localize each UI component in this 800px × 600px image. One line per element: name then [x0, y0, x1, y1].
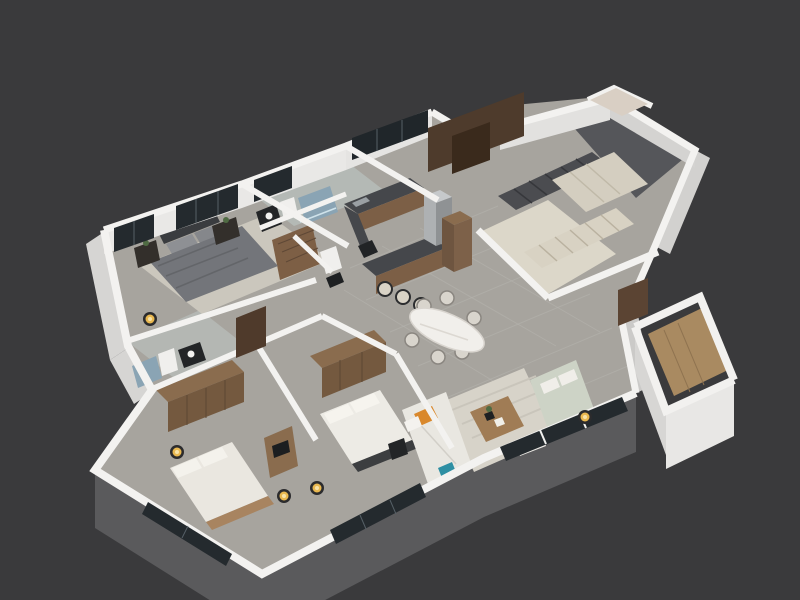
bar-stool: [396, 290, 410, 304]
dining-chair: [405, 333, 419, 347]
dining-chair: [467, 311, 481, 325]
ceiling-lamp-bedroom3-b: [310, 481, 324, 495]
plant: [223, 217, 229, 223]
table-lamp-bedroom2: [170, 445, 184, 459]
ceiling-lamp-bedroom3-a-core: [282, 494, 286, 498]
fridge-front: [424, 196, 436, 246]
table-lamp-bedroom2-core: [175, 450, 179, 454]
bar-stool: [378, 282, 392, 296]
isometric-floorplan-svg: [0, 0, 800, 600]
dining-chair: [440, 291, 454, 305]
wall-lamp-living-core: [583, 415, 587, 419]
bath2-sink: [188, 351, 195, 358]
wall-lamp-master: [143, 312, 157, 326]
wall-lamp-living: [578, 410, 592, 424]
pantry-side: [454, 218, 472, 272]
wall-lamp-master-core: [148, 317, 152, 321]
ceiling-lamp-bedroom3-a: [277, 489, 291, 503]
dining-chair: [431, 350, 445, 364]
pantry-front: [442, 218, 454, 272]
ensuite-sink: [266, 213, 273, 220]
ceiling-lamp-bedroom3-b-core: [315, 486, 319, 490]
floorplan-render-stage: 3D Isometric Apartment Floor Plan Render: [0, 0, 800, 600]
coffee-table-plant: [486, 406, 492, 412]
